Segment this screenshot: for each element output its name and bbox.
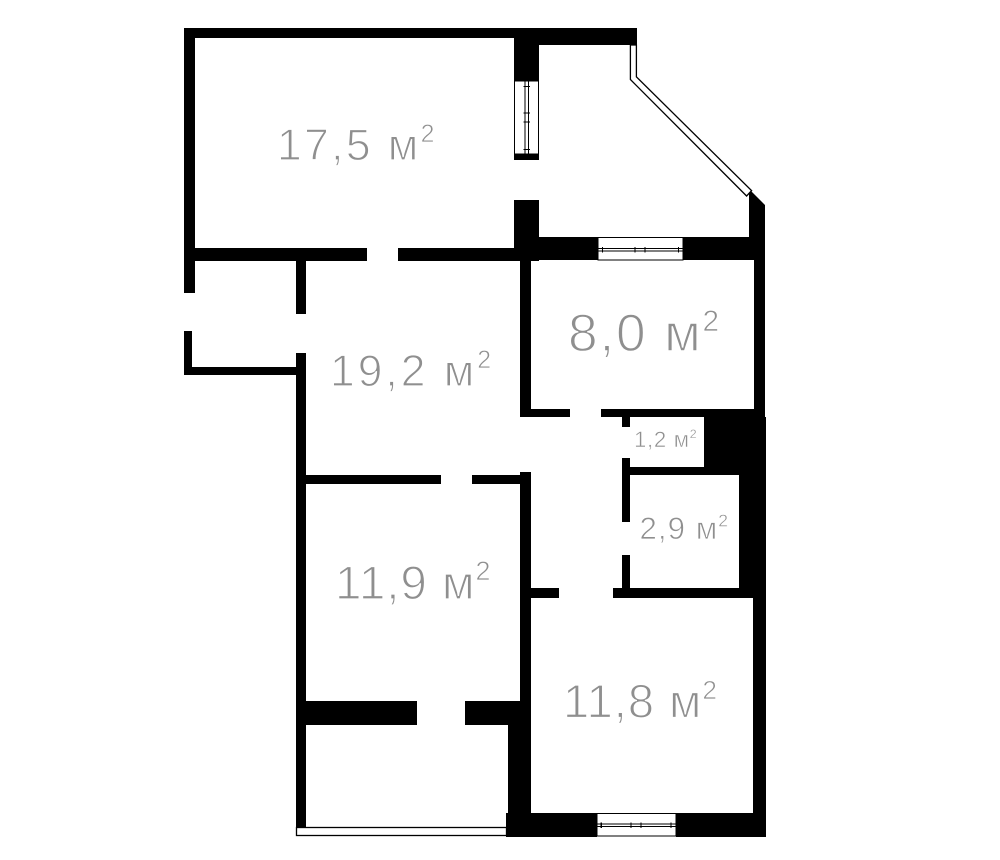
svg-text:19,2 м2: 19,2 м2 [330,346,494,396]
svg-text:2,9 м2: 2,9 м2 [640,511,729,547]
svg-text:1,2 м2: 1,2 м2 [634,427,697,452]
svg-text:11,8 м2: 11,8 м2 [563,675,718,728]
svg-text:11,9 м2: 11,9 м2 [335,556,491,610]
svg-text:8,0 м2: 8,0 м2 [568,304,721,363]
svg-text:17,5 м2: 17,5 м2 [277,120,437,170]
